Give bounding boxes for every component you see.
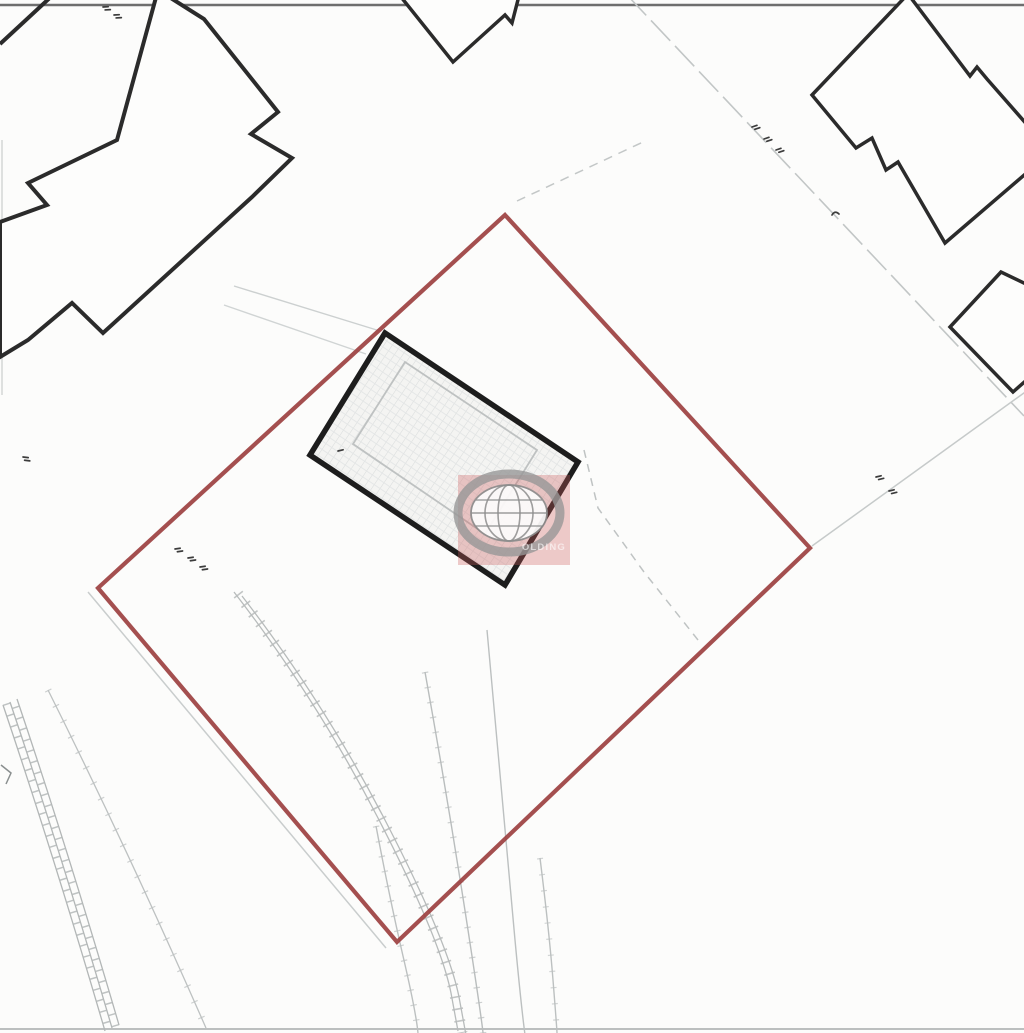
parcel-line-east	[812, 390, 1024, 546]
track-band-rail-left	[3, 705, 105, 1031]
neighbor-building-northwest	[0, 0, 292, 357]
neighbor-building-east	[950, 272, 1024, 392]
bank-curve-c	[540, 858, 557, 1033]
driveway-line-2	[224, 305, 366, 354]
neighbor-building-north	[397, 0, 520, 62]
annotation-mark	[832, 212, 839, 215]
annotation-mark	[114, 13, 121, 20]
track-band-rungs-2	[14, 701, 116, 1027]
site-plan-page: OLDING	[0, 0, 1024, 1033]
plan-features: OLDING	[0, 0, 1024, 1033]
site-boundary-red	[98, 215, 810, 942]
annotation-mark	[752, 124, 760, 132]
track-band-rail-right	[17, 699, 119, 1025]
bank-curve-b	[487, 630, 530, 1033]
boundary-companion-southwest	[88, 592, 386, 948]
parcel-line-north-dashed	[517, 142, 643, 201]
annotation-mark	[188, 555, 196, 562]
neighbor-building-corner-segment	[0, 0, 54, 44]
garden-steps-rail-right	[242, 596, 466, 1033]
wall-corner-mark	[1, 765, 11, 784]
track-outer-ticks	[48, 690, 206, 1028]
watermark-text: OLDING	[522, 542, 566, 553]
driveway-line-1	[234, 286, 380, 331]
fence-line-dashed-east-of-house	[584, 450, 698, 640]
track-outer-line	[48, 690, 206, 1028]
annotation-mark	[200, 564, 208, 571]
plan-canvas: OLDING	[0, 0, 1024, 1033]
track-band-rail-mid	[10, 702, 112, 1028]
garden-steps-rail-left	[234, 592, 458, 1031]
annotation-mark	[876, 474, 884, 481]
annotation-mark	[23, 456, 30, 462]
annotation-mark	[175, 546, 183, 553]
track-band-rungs-1	[7, 704, 109, 1030]
neighbor-building-northeast	[812, 0, 1024, 243]
annotation-mark	[776, 147, 784, 155]
garden-steps-rungs	[238, 594, 462, 1033]
